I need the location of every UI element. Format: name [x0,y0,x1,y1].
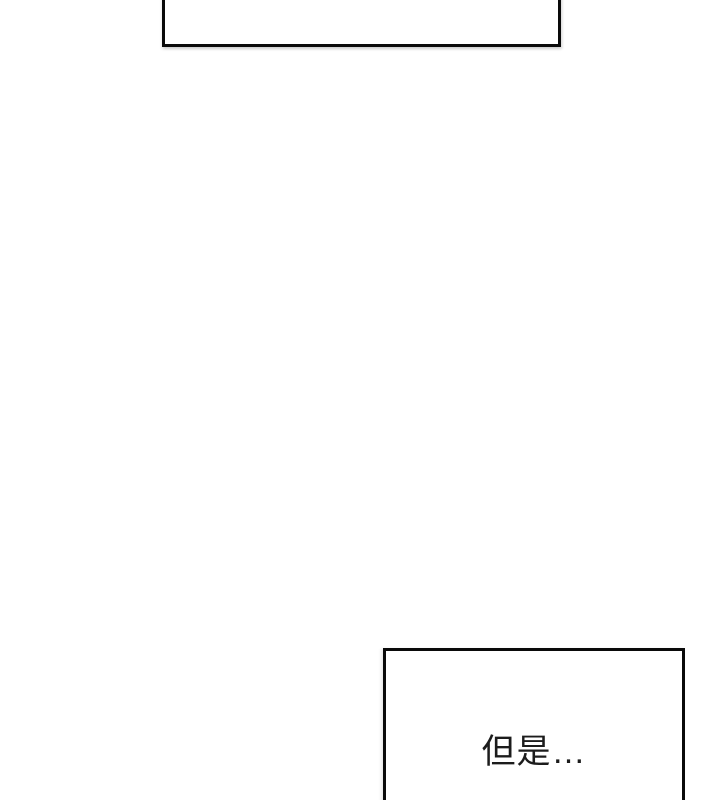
comic-page: 但是… [0,0,720,800]
panel-bottom-caption: 但是… [383,648,685,800]
caption-text: 但是… [386,735,682,769]
panel-top-empty [162,0,561,47]
